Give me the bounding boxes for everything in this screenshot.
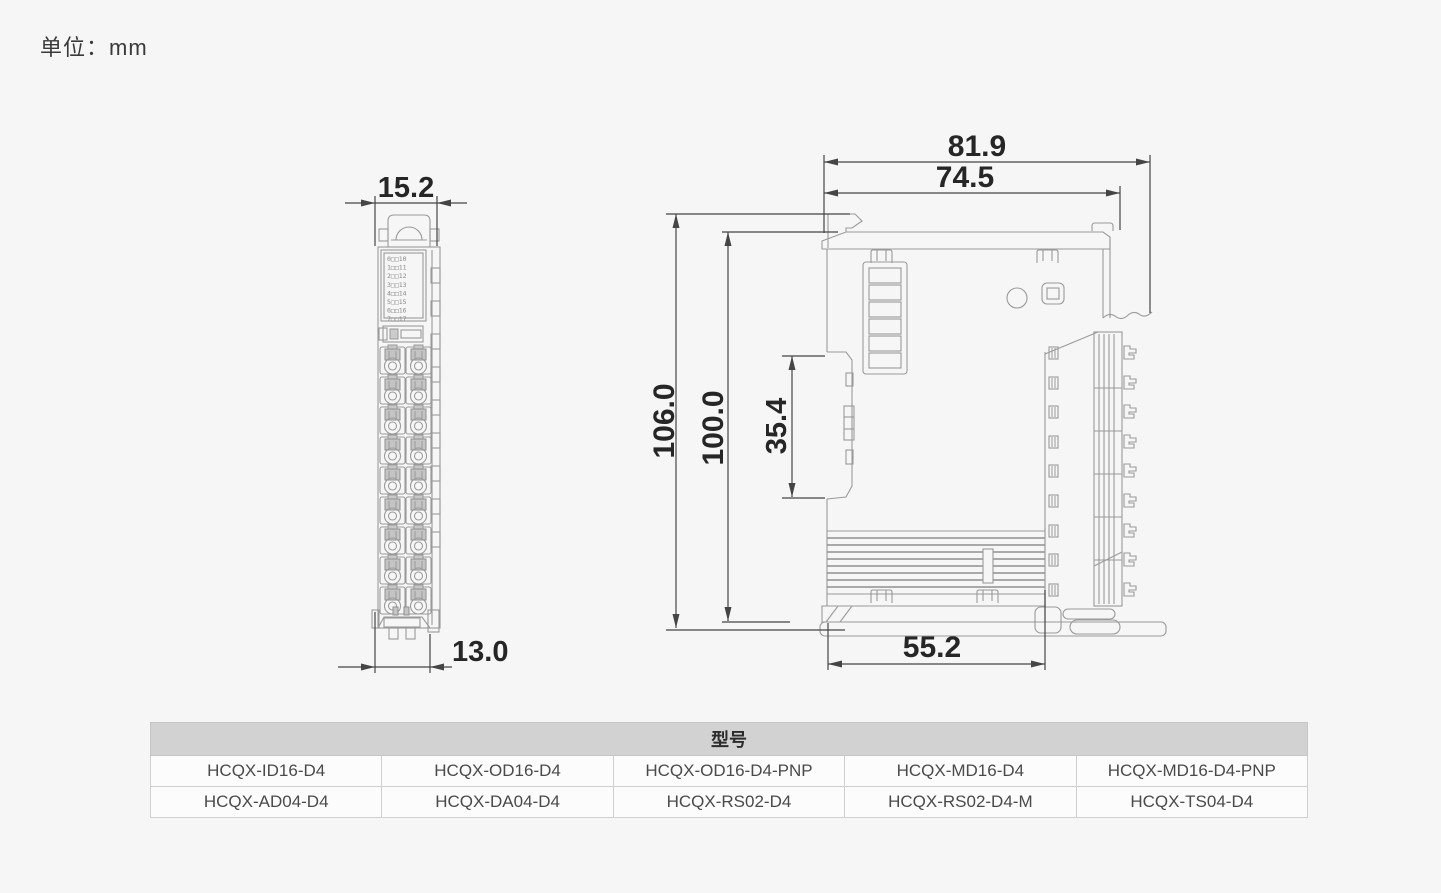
model-cell: HCQX-OD16-D4 bbox=[382, 756, 613, 787]
side-connector-panel bbox=[1045, 332, 1136, 606]
led-row-label: 5□□15 bbox=[387, 298, 407, 306]
led-row-label: 6□□16 bbox=[387, 307, 407, 315]
model-cell: HCQX-ID16-D4 bbox=[151, 756, 382, 787]
led-indicator-window: 0□□10 1□□11 2□□12 3□□13 4□□14 5□□15 6□□1… bbox=[381, 250, 426, 323]
table-header-row: 型号 bbox=[151, 723, 1308, 756]
led-row-label: 3□□13 bbox=[387, 281, 407, 289]
dim-front-top-width: 15.2 bbox=[378, 172, 434, 204]
dim-side-total-width: 81.9 bbox=[948, 130, 1006, 163]
led-row-label: 2□□12 bbox=[387, 272, 407, 280]
dim-side-body-height: 100.0 bbox=[697, 390, 730, 465]
front-view-drawing: 0□□10 1□□11 2□□12 3□□13 4□□14 5□□15 6□□1… bbox=[372, 215, 440, 639]
led-row-label: 1□□11 bbox=[387, 264, 407, 272]
table-row: HCQX-ID16-D4 HCQX-OD16-D4 HCQX-OD16-D4-P… bbox=[151, 756, 1308, 787]
model-cell: HCQX-RS02-D4 bbox=[613, 787, 844, 818]
side-view-drawing bbox=[820, 214, 1166, 636]
dim-side-base-width: 55.2 bbox=[903, 631, 961, 664]
model-cell: HCQX-DA04-D4 bbox=[382, 787, 613, 818]
terminal-clamps bbox=[380, 345, 431, 614]
model-cell: HCQX-RS02-D4-M bbox=[845, 787, 1076, 818]
model-cell: HCQX-OD16-D4-PNP bbox=[613, 756, 844, 787]
model-cell: HCQX-MD16-D4-PNP bbox=[1076, 756, 1307, 787]
unit-label: 单位：mm bbox=[40, 30, 148, 62]
led-row-label: 4□□14 bbox=[387, 289, 407, 297]
dim-front-bottom-width: 13.0 bbox=[452, 636, 508, 668]
dim-side-body-width: 74.5 bbox=[936, 161, 994, 194]
dim-side-total-height: 106.0 bbox=[648, 383, 681, 458]
dimension-lines bbox=[338, 155, 1150, 673]
table-row: HCQX-AD04-D4 HCQX-DA04-D4 HCQX-RS02-D4 H… bbox=[151, 787, 1308, 818]
vent-grille bbox=[863, 262, 907, 374]
model-number-table: 型号 HCQX-ID16-D4 HCQX-OD16-D4 HCQX-OD16-D… bbox=[150, 722, 1308, 818]
model-cell: HCQX-MD16-D4 bbox=[845, 756, 1076, 787]
heatsink-ribs bbox=[827, 531, 1045, 594]
dimension-drawing-page: 单位：mm bbox=[0, 0, 1441, 893]
led-row-label: 0□□10 bbox=[387, 255, 407, 263]
model-cell: HCQX-AD04-D4 bbox=[151, 787, 382, 818]
din-latch bbox=[1035, 607, 1120, 634]
mounting-hole bbox=[1007, 288, 1027, 308]
technical-drawing: 0□□10 1□□11 2□□12 3□□13 4□□14 5□□15 6□□1… bbox=[0, 0, 1441, 715]
dim-din-slot-height: 35.4 bbox=[761, 398, 793, 454]
led-row-label: 7□□17 bbox=[387, 315, 407, 323]
table-header-model: 型号 bbox=[151, 723, 1308, 756]
model-cell: HCQX-TS04-D4 bbox=[1076, 787, 1307, 818]
